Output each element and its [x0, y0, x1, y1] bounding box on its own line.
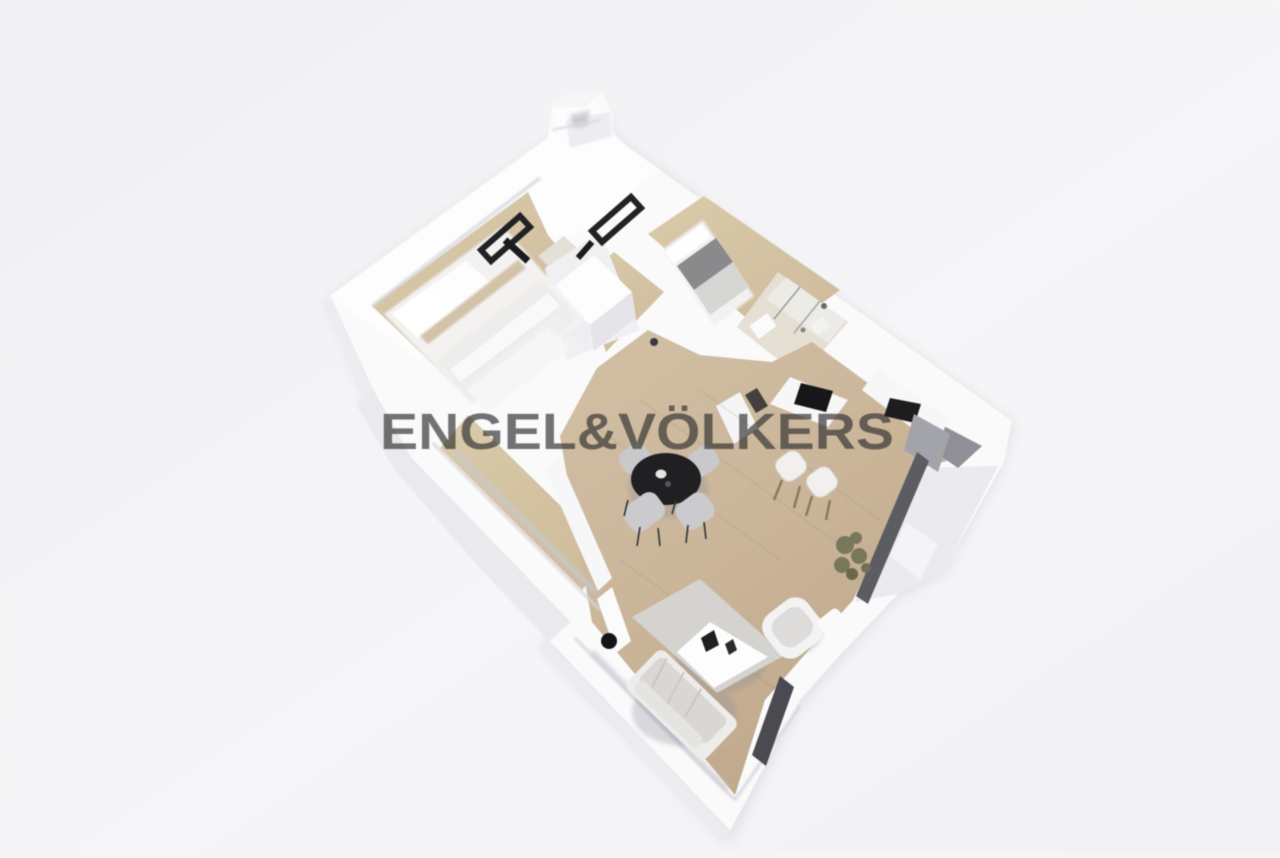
svg-text:ENGEL&VÖLKERS: ENGEL&VÖLKERS [380, 403, 894, 460]
